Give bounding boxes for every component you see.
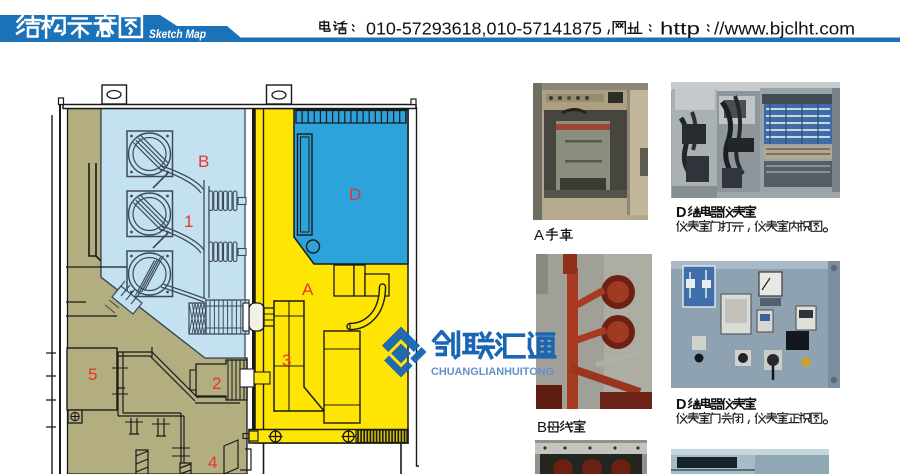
svg-text:D: D <box>676 397 686 413</box>
svg-text:Sketch Map: Sketch Map <box>149 27 206 41</box>
svg-text:http: http <box>660 19 700 39</box>
svg-text:A: A <box>534 227 544 244</box>
svg-text:3: 3 <box>282 351 291 370</box>
svg-text://www.bjclht.com: //www.bjclht.com <box>714 19 855 39</box>
svg-text:B: B <box>537 419 547 436</box>
svg-text:D: D <box>676 205 686 221</box>
svg-text:A: A <box>302 280 314 299</box>
svg-text:4: 4 <box>208 453 217 472</box>
svg-text:B: B <box>198 152 209 171</box>
svg-text:D: D <box>349 185 361 204</box>
svg-text:5: 5 <box>88 365 97 384</box>
svg-text:010-57293618,010-57141875: 010-57293618,010-57141875 <box>366 19 602 39</box>
svg-text:2: 2 <box>212 374 221 393</box>
svg-text:1: 1 <box>184 212 193 231</box>
svg-text:CHUANGLIANHUITONG: CHUANGLIANHUITONG <box>431 366 554 378</box>
